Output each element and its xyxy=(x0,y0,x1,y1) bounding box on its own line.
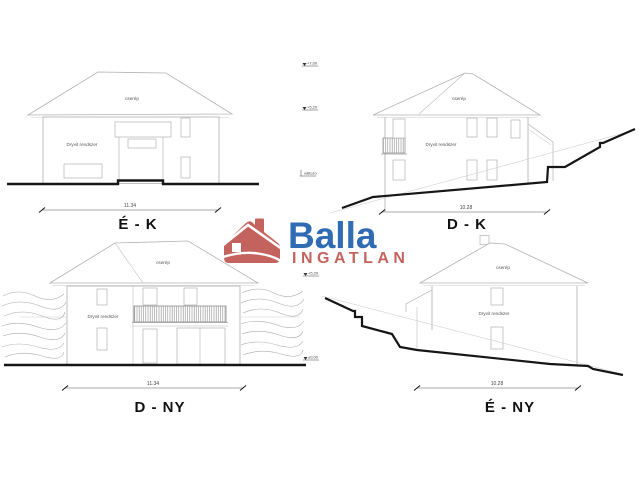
level-marker-terrain: változó xyxy=(300,170,317,176)
dny-window xyxy=(97,289,107,305)
level-ridge-value: +7,00 xyxy=(307,61,318,66)
elevation-ek: cserép Dryvit rendszer 11.34 É - K xyxy=(7,72,259,233)
eny-window xyxy=(491,327,503,349)
dk-window xyxy=(511,120,520,138)
dny-sliding-door xyxy=(177,328,225,364)
level-dny-eaves-value: +5,20 xyxy=(308,271,319,276)
level-marker-dny-eaves: +5,20 xyxy=(303,271,319,277)
eny-view-title: É - NY xyxy=(485,399,535,416)
trees-left xyxy=(2,292,66,358)
ek-view-title: É - K xyxy=(118,216,157,233)
ek-dimension-value: 11.34 xyxy=(124,203,136,209)
dny-window xyxy=(143,288,157,305)
dny-wall-material-label: Dryvit rendszer xyxy=(88,314,119,319)
elevations-drawing: cserép Dryvit rendszer 11.34 É - K cseré… xyxy=(0,0,640,480)
level-eaves-value: +5,20 xyxy=(307,105,318,110)
eny-porch-roof xyxy=(406,290,432,312)
eny-roof xyxy=(420,243,588,283)
dk-wall-material-label: Dryvit rendszer xyxy=(426,142,457,147)
dk-roof-material-label: cserép xyxy=(452,96,466,101)
dk-window xyxy=(467,160,477,180)
eny-chimney xyxy=(480,236,489,245)
house-icon xyxy=(222,219,282,264)
dk-window xyxy=(467,118,477,137)
ek-roof xyxy=(28,72,232,115)
dk-roof xyxy=(373,73,540,115)
dny-roof-material-label: cserép xyxy=(156,260,170,265)
elevation-dk: cserép Dryvit rendszer 10.28 D - K xyxy=(330,73,635,233)
dk-grade-line xyxy=(330,130,635,213)
dny-dimension-value: 11.34 xyxy=(147,381,159,387)
dk-view-title: D - K xyxy=(447,216,487,233)
dk-porch-roof-inner xyxy=(528,129,551,145)
elevation-sheet: cserép Dryvit rendszer 11.34 É - K cseré… xyxy=(0,0,640,480)
eny-terrain-line xyxy=(325,298,623,375)
level-terrain-value: változó xyxy=(304,171,317,176)
ek-roof-material-label: cserép xyxy=(125,96,139,101)
eny-roof-material-label: cserép xyxy=(496,265,510,270)
level-dny-ground-value: ±0,00 xyxy=(308,355,319,360)
dk-window xyxy=(487,118,497,137)
dk-dimension-value: 10.28 xyxy=(460,205,473,211)
level-markers-top: +7,00 +5,20 változó xyxy=(300,61,318,177)
level-marker-dny-ground: ±0,00 xyxy=(303,355,319,361)
ek-window-right-low xyxy=(181,157,190,178)
trees-right xyxy=(241,289,304,356)
dny-window xyxy=(97,328,107,350)
dny-balcony-railing xyxy=(134,306,226,322)
eny-dimension-value: 10.28 xyxy=(491,381,504,387)
ek-window-low xyxy=(64,164,102,178)
dk-window xyxy=(393,119,405,138)
level-marker-eaves: +5,20 xyxy=(302,105,318,111)
ek-wall-material-label: Dryvit rendszer xyxy=(67,142,98,147)
ek-window-right-up xyxy=(181,118,190,137)
dny-view-title: D - NY xyxy=(135,399,186,416)
balla-ingatlan-logo: Balla INGATLAN xyxy=(222,215,409,267)
eny-wall-material-label: Dryvit rendszer xyxy=(479,311,510,316)
dk-porch-roof xyxy=(528,124,553,181)
eny-window xyxy=(491,288,503,305)
dk-balcony-railing xyxy=(383,138,405,153)
ek-window-small xyxy=(128,139,156,148)
ek-window-band xyxy=(115,122,171,137)
logo-brand-type: INGATLAN xyxy=(292,250,409,267)
elevation-dny: cserép Dryvit rendszer 11.34 D - NY +5,2… xyxy=(2,241,319,416)
dny-door xyxy=(143,329,157,363)
dny-window xyxy=(184,288,197,305)
level-marker-ridge: +7,00 xyxy=(302,61,318,67)
dk-window xyxy=(393,160,405,180)
